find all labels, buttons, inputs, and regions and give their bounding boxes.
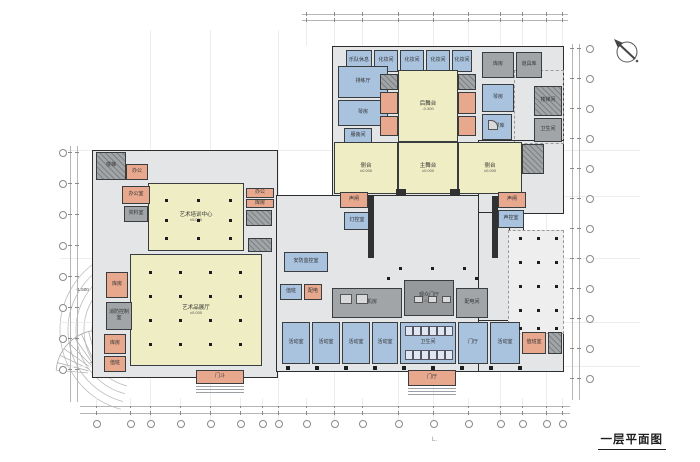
room-label: 门斗: [215, 374, 225, 380]
room-label: 声控室: [503, 216, 518, 222]
dim-tick: [68, 183, 72, 184]
service-core: [396, 189, 406, 195]
wc-stall: [429, 326, 437, 336]
column-dot: [555, 285, 558, 288]
dim-tick: [546, 12, 547, 16]
dim-tick: [433, 12, 434, 16]
room-lobby2: 门厅: [458, 322, 488, 364]
grid-bubble: [586, 105, 594, 113]
dim-tick: [75, 152, 79, 153]
room-label: 配电: [308, 289, 318, 295]
north-arrow-icon: [620, 45, 635, 59]
grid-extension: [278, 398, 279, 406]
grid-bubble: [586, 45, 594, 53]
dimension-line: [80, 413, 570, 414]
dim-tick: [362, 411, 363, 415]
room-fire-ctrl: 消防控制室: [106, 302, 132, 330]
service-core: [380, 116, 398, 136]
dim-tick: [577, 348, 581, 349]
room-piano2: 琴房: [482, 84, 514, 112]
grid-extension: [334, 398, 335, 406]
dim-tick: [577, 378, 581, 379]
wc-stall: [413, 326, 421, 336]
room-label: 活动室: [318, 340, 333, 346]
entrance-step: [196, 392, 244, 393]
dim-tick: [240, 411, 241, 415]
dim-tick: [570, 168, 574, 169]
grid-bubble: [59, 273, 67, 281]
room-label: 资料室: [128, 211, 143, 217]
dim-tick: [577, 168, 581, 169]
room-shop5: 活动室: [490, 322, 520, 364]
room-elevation: ±0.000: [422, 169, 434, 174]
room-label: 办公: [132, 169, 142, 175]
room-label: 门厅: [427, 375, 437, 381]
wc-stall: [445, 350, 453, 360]
service-core: [450, 189, 460, 195]
service-core: [458, 116, 476, 136]
column-dot: [537, 285, 540, 288]
dim-tick: [75, 183, 79, 184]
grid-bubble: [331, 420, 339, 428]
room-label: 化妆间: [378, 58, 393, 64]
dim-tick: [68, 214, 72, 215]
room-label: 值班室: [526, 340, 541, 346]
service-core: [522, 144, 544, 174]
dimension-line: [77, 146, 78, 402]
wc-stall: [405, 350, 413, 360]
lobby-furniture: [428, 296, 437, 303]
grid-bubble: [586, 345, 594, 353]
grid-bubble: [543, 420, 551, 428]
room-label: 楼梯间: [540, 98, 555, 104]
room-vest2: 门厅: [408, 370, 456, 386]
column-dot: [149, 271, 152, 274]
room-label: 声闸: [507, 197, 517, 203]
room-shop4: 活动室: [372, 322, 398, 364]
north-arrow-icon: [636, 60, 639, 63]
dimension-line: [80, 406, 570, 407]
column-dot: [197, 237, 200, 240]
column-dot: [475, 277, 478, 280]
grid-extension: [468, 398, 469, 406]
room-soundlock-r: 声闸: [498, 192, 526, 208]
column-dot: [399, 267, 402, 270]
column-dot: [229, 237, 232, 240]
grid-extension: [522, 22, 523, 46]
grid-bubble: [586, 255, 594, 263]
room-label: 库房: [255, 201, 265, 207]
grid-extension: [130, 398, 131, 406]
room-shop2: 活动室: [312, 322, 340, 364]
column-dot: [555, 309, 558, 312]
room-transformer: 配电间: [456, 288, 488, 318]
service-core: [548, 332, 562, 354]
service-core: [380, 92, 398, 114]
dim-tick: [577, 198, 581, 199]
grid-bubble: [259, 420, 267, 428]
dim-tick: [180, 411, 181, 415]
grid-bubble: [430, 420, 438, 428]
column-dot: [197, 199, 200, 202]
wall-pilaster: [286, 366, 290, 370]
corner-mark: L.: [432, 437, 437, 443]
room-label: 活动室: [497, 340, 512, 346]
dim-tick: [577, 228, 581, 229]
dim-tick: [75, 307, 79, 308]
dim-tick: [577, 288, 581, 289]
column-dot: [209, 343, 212, 346]
room-label: 琴房: [493, 95, 503, 101]
room-label: 库房: [493, 62, 503, 68]
wc-stall: [445, 326, 453, 336]
wall-pilaster: [373, 366, 377, 370]
wall-pilaster: [431, 366, 435, 370]
grid-extension: [522, 398, 523, 406]
grid-extension: [96, 398, 97, 406]
room-store-l4: 库房: [104, 334, 126, 354]
column-dot: [555, 237, 558, 240]
room-label: 排练厅: [355, 79, 370, 85]
grid-bubble: [59, 366, 67, 374]
room-label: 消防控制室: [107, 310, 131, 322]
dim-tick: [468, 12, 469, 16]
grid-bubble: [147, 420, 155, 428]
dimension-line: [579, 44, 580, 400]
grid-extension: [546, 398, 547, 406]
dimension-line: [70, 146, 71, 402]
dim-tick: [75, 276, 79, 277]
column-dot: [555, 327, 558, 330]
dim-tick: [577, 258, 581, 259]
dim-tick: [130, 411, 131, 415]
column-dot: [229, 219, 232, 222]
room-label: 活动室: [348, 340, 363, 346]
dim-tick: [334, 12, 335, 16]
room-office-b: 办公: [126, 164, 148, 180]
wall-pilaster: [460, 366, 464, 370]
room-light-ctl: 灯控室: [344, 212, 370, 230]
column-dot: [537, 309, 540, 312]
wall-pilaster: [344, 366, 348, 370]
room-label: 值班: [110, 361, 120, 367]
service-core: [458, 92, 476, 114]
grid-extension: [433, 22, 434, 46]
dim-tick: [68, 276, 72, 277]
dim-tick: [334, 411, 335, 415]
room-label: 办公室: [128, 192, 143, 198]
grid-bubble: [59, 335, 67, 343]
dim-tick: [570, 108, 574, 109]
room-side-stage-r: 侧台±0.000: [458, 142, 522, 194]
wc-stall: [437, 326, 445, 336]
grid-bubble: [303, 420, 311, 428]
column-dot: [229, 199, 232, 202]
column-dot: [149, 295, 152, 298]
column-dot: [239, 343, 242, 346]
dim-tick: [570, 48, 574, 49]
dim-tick: [68, 338, 72, 339]
room-label: 配电间: [464, 300, 479, 306]
grid-extension: [398, 22, 399, 46]
room-office-c: 办公: [246, 188, 274, 198]
dim-tick: [468, 411, 469, 415]
room-elevation: ±0.000: [360, 169, 372, 174]
room-wc1: 卫生间: [534, 118, 562, 142]
column-dot: [463, 267, 466, 270]
grid-bubble: [586, 195, 594, 203]
grid-bubble: [586, 285, 594, 293]
room-dress3: 化妆间: [400, 50, 424, 72]
dim-tick: [75, 245, 79, 246]
room-label: 卫生间: [540, 127, 555, 133]
grid-bubble: [59, 149, 67, 157]
service-core: [246, 210, 272, 226]
dim-tick: [570, 318, 574, 319]
column-dot: [165, 237, 168, 240]
room-soundlock-l: 声闸: [340, 192, 368, 208]
room-label: 值班: [286, 289, 296, 295]
room-dress4: 化妆间: [426, 50, 450, 72]
room-store-l3: 库房: [106, 272, 128, 298]
dim-tick: [75, 214, 79, 215]
dim-tick: [570, 378, 574, 379]
column-dot: [209, 295, 212, 298]
column-dot: [165, 219, 168, 222]
dim-tick: [278, 411, 279, 415]
room-label: 楼梯: [106, 163, 116, 169]
column-dot: [431, 267, 434, 270]
room-elevation: -0.300: [422, 107, 433, 112]
grid-bubble: [127, 420, 135, 428]
dim-tick: [522, 411, 523, 415]
dim-tick: [570, 228, 574, 229]
column-dot: [239, 319, 242, 322]
dim-tick: [570, 198, 574, 199]
column-dot: [519, 285, 522, 288]
room-label: 化妆间: [404, 58, 419, 64]
grid-extension: [500, 398, 501, 406]
room-label: 乐队休息: [349, 58, 369, 64]
room-label: 道具库: [521, 62, 536, 68]
dim-tick: [433, 411, 434, 415]
dim-tick: [398, 411, 399, 415]
room-label: 卫生间: [420, 340, 435, 346]
wall-pilaster: [402, 366, 406, 370]
dim-tick: [75, 338, 79, 339]
room-sound-ctl: 声控室: [498, 210, 524, 228]
entrance-step: [408, 394, 456, 395]
grid-extension: [334, 22, 335, 46]
grid-bubble: [59, 304, 67, 312]
entrance-step: [408, 391, 456, 392]
dim-tick: [577, 48, 581, 49]
drawing-title: 一层平面图: [598, 431, 667, 450]
dim-tick: [570, 288, 574, 289]
room-stair-l2: 楼梯: [96, 152, 126, 180]
column-dot: [537, 327, 540, 330]
column-dot: [209, 271, 212, 274]
grid-extension: [210, 398, 211, 406]
room-vest1: 门斗: [196, 370, 244, 384]
dim-tick: [570, 258, 574, 259]
column-dot: [197, 219, 200, 222]
dim-tick: [546, 411, 547, 415]
entrance-step: [408, 388, 456, 389]
grid-extension: [306, 22, 307, 46]
grid-extension: [362, 398, 363, 406]
dim-tick: [570, 348, 574, 349]
room-storage1: 库房: [482, 52, 514, 78]
grid-extension: [546, 22, 547, 46]
dim-tick: [562, 411, 563, 415]
column-dot: [165, 199, 168, 202]
grid-extension: [240, 398, 241, 406]
column-dot: [179, 343, 182, 346]
room-label: 库房: [110, 341, 120, 347]
room-label: 灯控室: [349, 218, 364, 224]
room-duty-room: 值班室: [522, 332, 546, 354]
dim-tick: [577, 138, 581, 139]
dim-tick: [262, 411, 263, 415]
room-label: 门厅: [468, 340, 478, 346]
room-label: 活动室: [377, 340, 392, 346]
grid-extension: [306, 398, 307, 406]
room-office-d: 库房: [246, 199, 274, 208]
dim-tick: [570, 138, 574, 139]
dim-tick: [500, 411, 501, 415]
wc-stall: [413, 350, 421, 360]
dim-tick: [577, 318, 581, 319]
service-core: [380, 74, 398, 90]
wall-pilaster: [518, 366, 522, 370]
grid-bubble: [207, 420, 215, 428]
grid-bubble: [586, 225, 594, 233]
dim-tick: [68, 369, 72, 370]
wc-stall: [429, 350, 437, 360]
room-security: 安防监控室: [284, 252, 328, 272]
dim-tick: [96, 411, 97, 415]
grid-bubble: [559, 420, 567, 428]
dim-tick: [362, 12, 363, 16]
room-archive: 资料室: [124, 206, 148, 222]
room-label: 化妆间: [430, 58, 445, 64]
column-dot: [519, 309, 522, 312]
room-rear-stage: 后舞台-0.300: [398, 70, 458, 142]
dim-tick: [68, 152, 72, 153]
wall-pilaster: [489, 366, 493, 370]
room-label: 库房: [112, 282, 122, 288]
column-dot: [149, 319, 152, 322]
dim-tick: [210, 411, 211, 415]
wc-stall: [421, 326, 429, 336]
dim-tick: [500, 12, 501, 16]
dim-tick: [68, 245, 72, 246]
room-shop3: 活动室: [342, 322, 370, 364]
room-label: 琴房: [358, 110, 368, 116]
room-label: 活动室: [288, 340, 303, 346]
column-dot: [239, 295, 242, 298]
room-label: 化妆间: [454, 58, 469, 64]
grid-extension: [468, 22, 469, 46]
grid-extension: [262, 398, 263, 406]
dimension-line: [572, 44, 573, 400]
grid-bubble: [237, 420, 245, 428]
dim-tick: [577, 108, 581, 109]
entrance-step: [196, 386, 244, 387]
dim-tick: [68, 307, 72, 308]
service-core: [492, 196, 498, 258]
wall-pilaster: [315, 366, 319, 370]
ahu-equipment: [340, 294, 352, 304]
dim-tick: [306, 411, 307, 415]
grid-bubble: [497, 420, 505, 428]
grid-bubble: [586, 135, 594, 143]
ahu-equipment: [356, 294, 368, 304]
column-dot: [209, 319, 212, 322]
grid-extension: [180, 398, 181, 406]
dim-tick: [522, 12, 523, 16]
room-power: 配电: [304, 284, 322, 300]
wc-stall: [437, 350, 445, 360]
grid-bubble: [275, 420, 283, 428]
grid-extension: [562, 398, 563, 406]
service-core: [458, 74, 476, 90]
dim-tick: [570, 78, 574, 79]
grid-bubble: [59, 211, 67, 219]
service-core: [248, 238, 272, 252]
grid-bubble: [359, 420, 367, 428]
room-label: 声闸: [349, 197, 359, 203]
dim-tick: [398, 12, 399, 16]
grid-extension: [500, 22, 501, 46]
room-duty: 值班: [280, 284, 302, 300]
room-label: 安防监控室: [293, 259, 318, 265]
dim-tick: [306, 12, 307, 16]
grid-bubble: [586, 375, 594, 383]
service-core: [368, 196, 374, 258]
grid-extension: [362, 22, 363, 46]
grid-bubble: [59, 242, 67, 250]
grid-bubble: [395, 420, 403, 428]
grid-extension: [562, 22, 563, 46]
room-storage2: 道具库: [516, 52, 542, 78]
room-elevation: ±0.000: [190, 311, 202, 316]
room-side-stage-l: 侧台±0.000: [334, 142, 398, 194]
dim-tick: [562, 12, 563, 16]
grid-bubble: [586, 75, 594, 83]
room-stair-r2: 楼梯间: [534, 86, 562, 116]
column-dot: [179, 295, 182, 298]
lobby-furniture: [442, 296, 451, 303]
room-main-stage: 主舞台±0.000: [398, 142, 458, 194]
room-train-hall: 艺术培训中心±0.000: [148, 183, 244, 251]
wc-stall: [421, 350, 429, 360]
grid-extension: [398, 398, 399, 406]
grid-bubble: [465, 420, 473, 428]
grid-bubble: [519, 420, 527, 428]
dimension-line: [302, 14, 568, 15]
outdoor-terrace: [508, 230, 564, 334]
column-dot: [179, 319, 182, 322]
room-store-l5: 值班: [104, 356, 126, 372]
column-dot: [387, 277, 390, 280]
column-dot: [555, 261, 558, 264]
dim-tick: [75, 369, 79, 370]
grid-bubble: [586, 315, 594, 323]
room-office-a: 办公室: [122, 186, 150, 204]
column-dot: [179, 271, 182, 274]
